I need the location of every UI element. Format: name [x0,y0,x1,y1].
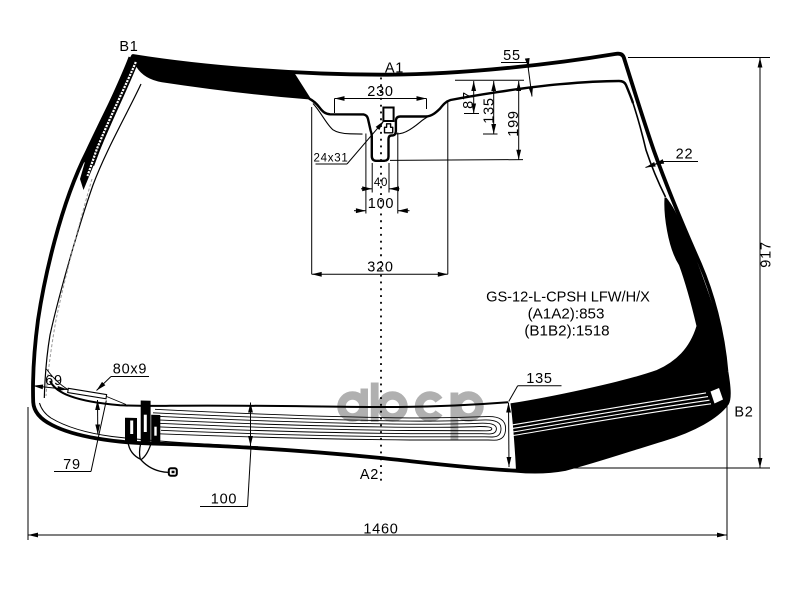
svg-text:GS-12-L-CPSH LFW/H/X: GS-12-L-CPSH LFW/H/X [486,290,650,306]
svg-text:69: 69 [45,373,63,389]
svg-text:87: 87 [461,91,477,109]
svg-text:40: 40 [374,177,388,189]
svg-text:230: 230 [367,84,393,100]
svg-text:135: 135 [526,371,552,387]
svg-text:B2: B2 [734,405,753,421]
svg-text:22: 22 [676,147,694,163]
svg-text:320: 320 [367,260,393,276]
svg-text:79: 79 [63,457,81,473]
svg-text:(B1B2):1518: (B1B2):1518 [524,323,609,340]
svg-text:100: 100 [211,492,237,508]
svg-text:199: 199 [506,110,522,136]
svg-text:80x9: 80x9 [113,362,147,378]
svg-text:B1: B1 [119,39,138,55]
svg-text:A2: A2 [360,467,379,483]
svg-text:1460: 1460 [363,522,398,538]
svg-text:135: 135 [482,97,498,123]
svg-text:A1: A1 [385,61,404,77]
svg-text:100: 100 [368,196,394,212]
svg-text:55: 55 [503,48,521,64]
svg-text:(A1A2):853: (A1A2):853 [528,306,605,323]
svg-text:917: 917 [759,241,775,267]
svg-text:24x31: 24x31 [313,153,348,165]
